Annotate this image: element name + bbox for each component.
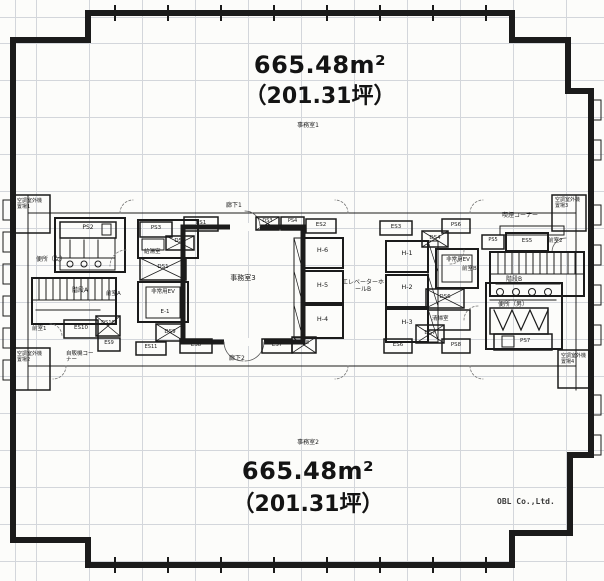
emergency-ev-left-number: E-1 (155, 309, 175, 315)
stairs-a (32, 278, 116, 324)
floorplan-canvas: 665.48m² （201.31坪） 事務室1 事務室2 665.48m² （2… (0, 0, 604, 581)
right-louvers (593, 100, 601, 455)
ante-b-label: 前室B (462, 266, 477, 272)
ac-yard-4-label: 空調室外機置場4 (561, 354, 589, 366)
vending-corner-label: 自販機コーナー (66, 351, 94, 364)
company-watermark: OBL Co.,Ltd. (497, 497, 555, 506)
ante-2-label: 前室2 (548, 238, 563, 244)
shaft-ds7-label: DS7 (416, 330, 444, 336)
shaft-es6-label: ES6 (384, 342, 412, 348)
elevator-hall-label: エレベーターホールB (342, 280, 384, 294)
shaft-es11-label: ES11 (136, 345, 166, 351)
shaft-es7-label: ES7 (262, 342, 292, 348)
stairs-b-label: 階段B (506, 277, 522, 284)
shaft-ds3-label: DS3 (256, 219, 279, 225)
corridor2-label: 廊下2 (229, 356, 245, 363)
shaft-ds2-label: DS2 (166, 238, 194, 244)
shaft-ps4-label: PS4 (281, 219, 304, 225)
stairs-a-label: 階段A (72, 288, 88, 295)
office1-area-tsubo: （201.31坪） (240, 84, 400, 109)
stairs-b (490, 252, 584, 296)
corridor1-label: 廊下1 (226, 203, 242, 210)
elevator-h2-label: H-2 (386, 284, 428, 291)
shaft-ps8-label: PS8 (442, 342, 470, 348)
ante-a-label: 前室A (106, 291, 121, 297)
shaft-es9-label: ES9 (98, 341, 120, 347)
shaft-ps2-label: PS2 (60, 225, 116, 232)
shaft-ds10-label: DS10 (96, 321, 120, 327)
shaft-ps5-label: PS5 (482, 238, 504, 244)
shaft-es10-label: ES10 (64, 325, 98, 331)
office1-area-sqm: 665.48m² (240, 52, 400, 80)
elevator-h5-label: H-5 (302, 282, 343, 289)
ante-1-label: 前室1 (32, 326, 47, 332)
shaft-ds9-label: DS9 (156, 329, 184, 335)
cleaning-room-label: 清掃室 (432, 316, 449, 322)
wc-women-label: 便所（女） (36, 257, 66, 264)
elevator-h3-label: H-3 (386, 319, 428, 326)
office2-room-label: 事務室2 (288, 440, 328, 447)
shaft-ds1-label: DS1 (140, 264, 186, 270)
shaft-ps6-label: PS6 (442, 222, 470, 228)
shaft-ps3-label: PS3 (140, 225, 172, 231)
elevator-h6-label: H-6 (302, 247, 343, 254)
shaft-ds8-label: DS8 (292, 341, 316, 347)
smoking-corner-label: 喫煙コーナー (502, 213, 538, 220)
shaft-ds4-label: DS4 (422, 235, 448, 241)
office1-room-label: 事務室1 (288, 123, 328, 130)
office3-room-label: 事務室3 (223, 274, 263, 282)
shaft-es3-label: ES3 (380, 224, 412, 230)
emergency-ev-left-label: 非常用EV (148, 289, 178, 295)
elevator-h4-label: H-4 (302, 316, 343, 323)
wc-men-label: 便所（男） (498, 302, 528, 309)
ac-yard-2-label: 空調室外機置場2 (17, 352, 45, 364)
elevator-h1-label: H-1 (386, 250, 428, 257)
office2-area-sqm: 665.48m² (228, 458, 388, 486)
office2-area-tsubo: （201.31坪） (228, 492, 388, 517)
shaft-es1-label: ES1 (184, 220, 218, 226)
kitchenette-label: 給湯室 (144, 249, 161, 255)
shaft-es8-label: ES8 (180, 342, 212, 348)
emergency-ev-right-label: 非常用EV (444, 257, 472, 263)
shaft-es5-label: ES5 (506, 238, 548, 244)
shaft-ds6-label: DS6 (426, 294, 464, 300)
ac-yard-3-label: 空調室外機置場3 (555, 198, 583, 210)
shaft-ps7-label: PS7 (520, 338, 530, 344)
ac-yard-1-label: 空調室外機置場1 (17, 199, 45, 211)
shaft-es2-label: ES2 (306, 222, 336, 228)
